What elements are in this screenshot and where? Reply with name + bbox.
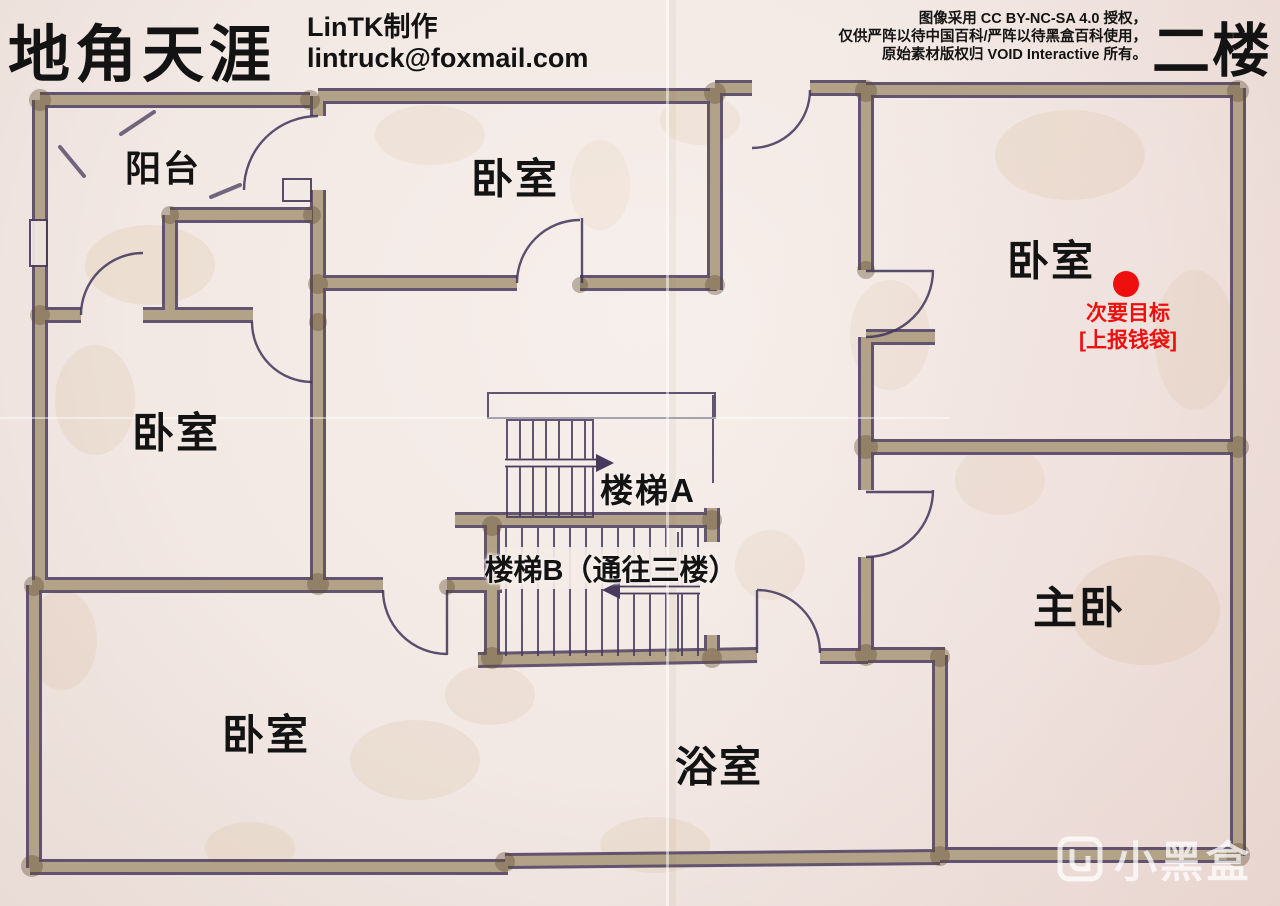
objective-marker-dot [1113,271,1139,297]
watermark-text: 小黑盒 [1114,828,1252,890]
door-arc-bedroom-top [517,220,580,283]
balcony-window [30,220,47,266]
license-line-1: 图像采用 CC BY-NC-SA 4.0 授权， [838,10,1147,28]
room-label-bedroom-top-right: 卧室 [1007,228,1095,289]
door-arc-top-corridor [752,90,810,148]
objective-detail: [上报钱袋] [1079,327,1177,354]
license-line-2: 仅供严阵以待中国百科/严阵以待黑盒百科使用， [838,28,1147,46]
license-line-3: 原始素材版权归 VOID Interactive 所有。 [838,46,1147,64]
room-label-stairs-a: 楼梯A [600,464,696,512]
door-arc-bedroom-left [252,322,312,382]
author-block: LinTK制作 lintruck@foxmail.com [307,12,588,74]
objective-type: 次要目标 [1079,300,1177,327]
heybox-logo-icon [1056,836,1104,882]
stairs-a-landing [488,393,715,418]
license-block: 图像采用 CC BY-NC-SA 4.0 授权， 仅供严阵以待中国百科/严阵以待… [838,10,1147,64]
map-title: 地角天涯 [8,4,276,94]
heybox-watermark: 小黑盒 [1056,828,1252,890]
closet-window [283,179,311,201]
stairs-a-treads [520,420,585,517]
door-arc-master-bedroom [866,490,933,557]
room-label-master-bedroom: 主卧 [1033,572,1125,636]
room-label-bedroom-left: 卧室 [132,400,220,461]
objective-label: 次要目标 [上报钱袋] [1079,300,1177,354]
room-label-stairs-b: 楼梯B（通往三楼） [485,547,738,589]
author-name: LinTK制作 [307,12,588,43]
room-label-balcony: 阳台 [125,140,201,192]
author-email: lintruck@foxmail.com [307,43,588,74]
floorplan-map-page: 地角天涯 LinTK制作 lintruck@foxmail.com 图像采用 C… [0,0,1280,906]
room-label-bedroom-top: 卧室 [471,146,559,207]
room-label-bedroom-bottom-left: 卧室 [222,702,310,763]
room-label-bathroom: 浴室 [675,734,763,795]
floor-label: 二楼 [1152,4,1272,88]
door-arc-bedroom-bottom-left [383,590,447,654]
